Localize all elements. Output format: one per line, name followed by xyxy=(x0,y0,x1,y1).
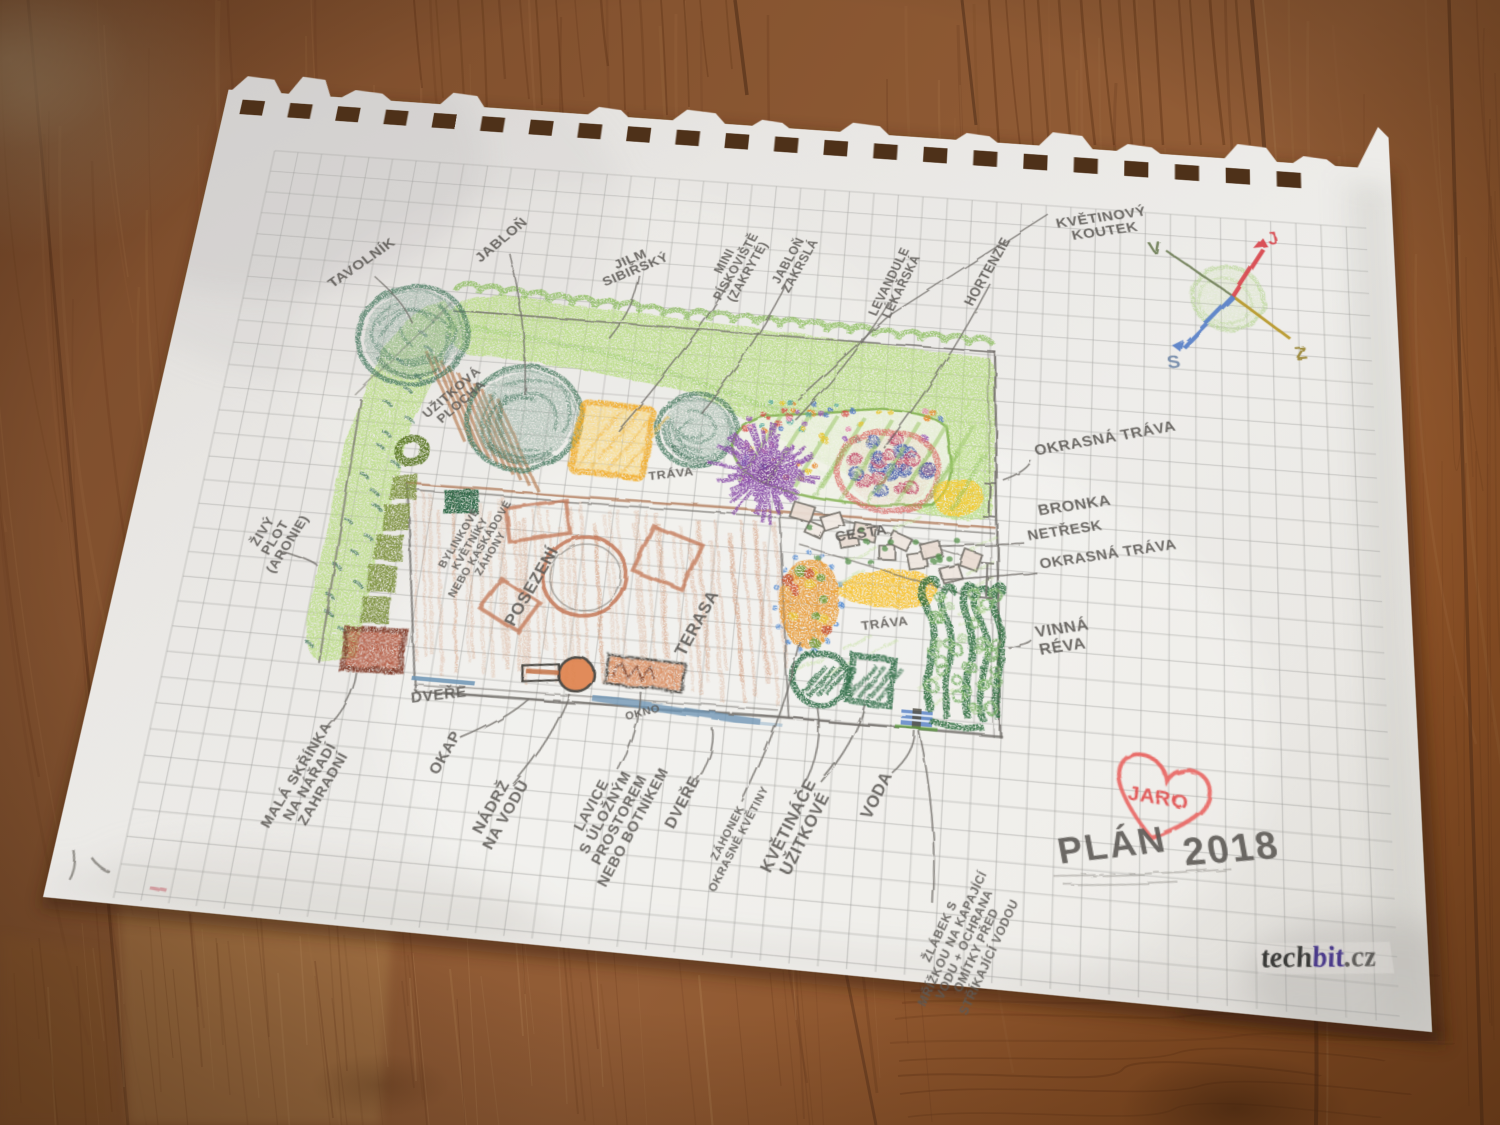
svg-text:2018: 2018 xyxy=(1179,824,1283,875)
svg-text:techbit.cz: techbit.cz xyxy=(1259,940,1379,974)
